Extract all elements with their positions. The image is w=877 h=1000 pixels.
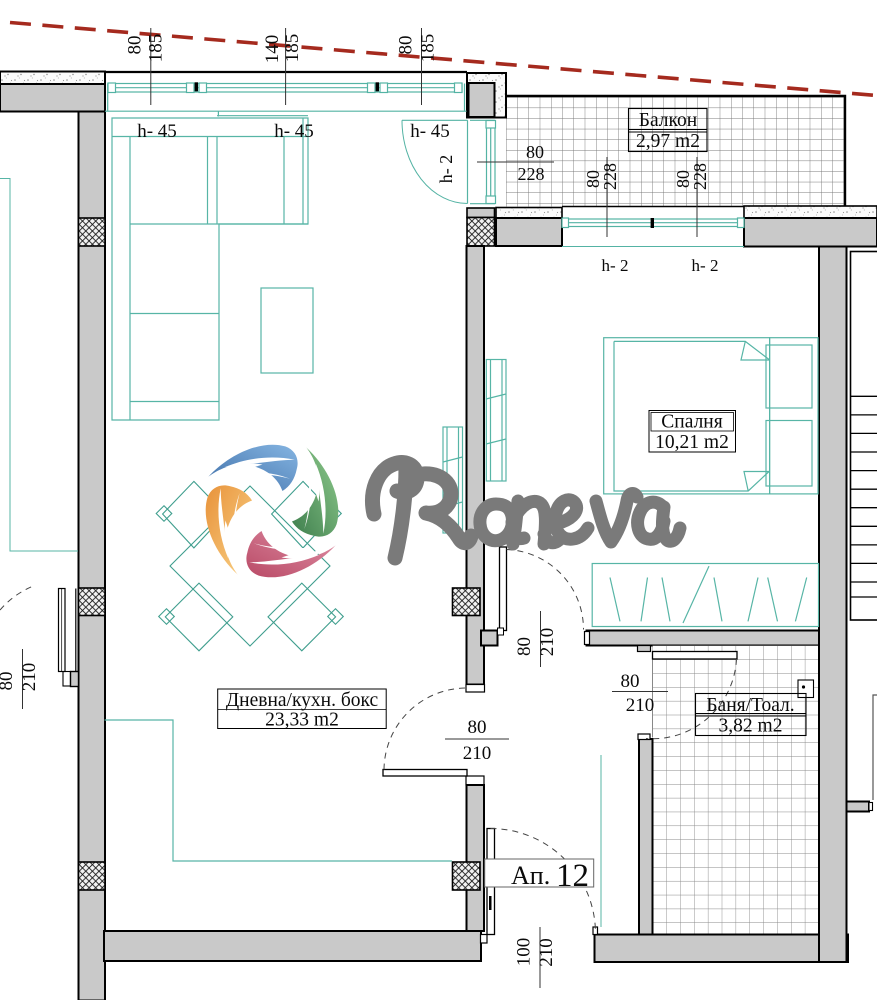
svg-text:80: 80 xyxy=(125,36,146,55)
svg-text:140: 140 xyxy=(262,35,283,64)
svg-text:100: 100 xyxy=(514,938,535,967)
svg-text:80: 80 xyxy=(526,142,544,162)
svg-text:h‑ 45: h‑ 45 xyxy=(137,121,177,142)
svg-text:228: 228 xyxy=(600,163,620,190)
svg-text:Ап.: Ап. xyxy=(511,861,550,890)
svg-text:228: 228 xyxy=(690,163,710,190)
svg-text:h‑ 2: h‑ 2 xyxy=(436,155,456,184)
svg-text:80: 80 xyxy=(514,637,535,656)
svg-text:Балкон: Балкон xyxy=(639,110,697,131)
svg-text:185: 185 xyxy=(282,34,303,63)
svg-text:210: 210 xyxy=(536,938,557,967)
svg-text:80: 80 xyxy=(621,671,640,692)
svg-text:h‑ 45: h‑ 45 xyxy=(410,121,450,142)
svg-text:80: 80 xyxy=(396,36,417,55)
svg-text:3,82 m2: 3,82 m2 xyxy=(719,716,783,737)
svg-text:10,21 m2: 10,21 m2 xyxy=(655,432,729,453)
svg-text:h‑ 2: h‑ 2 xyxy=(602,256,629,275)
svg-text:80: 80 xyxy=(0,672,17,691)
svg-text:210: 210 xyxy=(463,743,492,764)
svg-text:2,97 m2: 2,97 m2 xyxy=(636,131,700,152)
svg-text:228: 228 xyxy=(518,164,545,184)
svg-text:23,33 m2: 23,33 m2 xyxy=(265,710,339,731)
svg-text:Спалня: Спалня xyxy=(661,412,722,433)
svg-text:185: 185 xyxy=(146,34,167,63)
svg-text:185: 185 xyxy=(418,34,439,63)
svg-text:210: 210 xyxy=(537,628,558,657)
svg-text:210: 210 xyxy=(19,663,40,692)
svg-text:h‑ 2: h‑ 2 xyxy=(692,256,719,275)
svg-text:80: 80 xyxy=(468,717,487,738)
svg-text:Баня/Тоал.: Баня/Тоал. xyxy=(706,695,794,716)
svg-text:210: 210 xyxy=(626,695,655,716)
svg-text:12: 12 xyxy=(556,858,589,894)
svg-text:h‑ 45: h‑ 45 xyxy=(274,121,314,142)
svg-text:Дневна/кухн. бокс: Дневна/кухн. бокс xyxy=(226,690,379,711)
